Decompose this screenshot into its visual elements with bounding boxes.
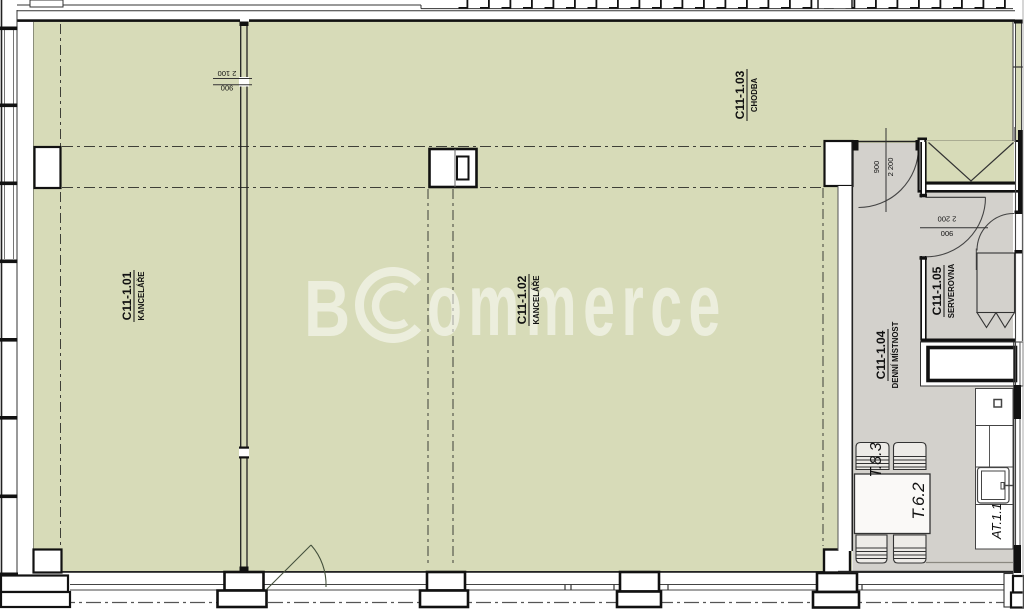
svg-text:C11-1.02: C11-1.02 — [515, 275, 529, 324]
svg-text:SERVEROVNA: SERVEROVNA — [947, 263, 956, 318]
svg-text:T.8.3: T.8.3 — [868, 442, 885, 477]
svg-text:B: B — [304, 264, 350, 353]
svg-text:KANCELÁŘE: KANCELÁŘE — [532, 276, 541, 325]
svg-text:DENNÍ MÍSTNOST: DENNÍ MÍSTNOST — [891, 321, 900, 388]
svg-text:C11-1.01: C11-1.01 — [120, 271, 134, 320]
svg-text:2 200: 2 200 — [938, 215, 957, 224]
svg-text:AT.1.1: AT.1.1 — [989, 503, 1004, 540]
svg-text:T.6.2: T.6.2 — [909, 482, 928, 520]
svg-text:KANCELÁŘE: KANCELÁŘE — [137, 272, 146, 321]
svg-text:900: 900 — [941, 229, 954, 238]
svg-text:C11-1.03: C11-1.03 — [733, 70, 747, 119]
svg-text:900: 900 — [872, 161, 881, 174]
svg-text:900: 900 — [221, 84, 234, 93]
svg-text:CHODBA: CHODBA — [750, 78, 759, 113]
svg-text:2 100: 2 100 — [218, 69, 237, 78]
svg-text:C11-1.04: C11-1.04 — [874, 330, 888, 379]
svg-text:C11-1.05: C11-1.05 — [930, 266, 944, 315]
svg-text:2 200: 2 200 — [886, 158, 895, 177]
svg-text:ommerce: ommerce — [427, 256, 727, 354]
